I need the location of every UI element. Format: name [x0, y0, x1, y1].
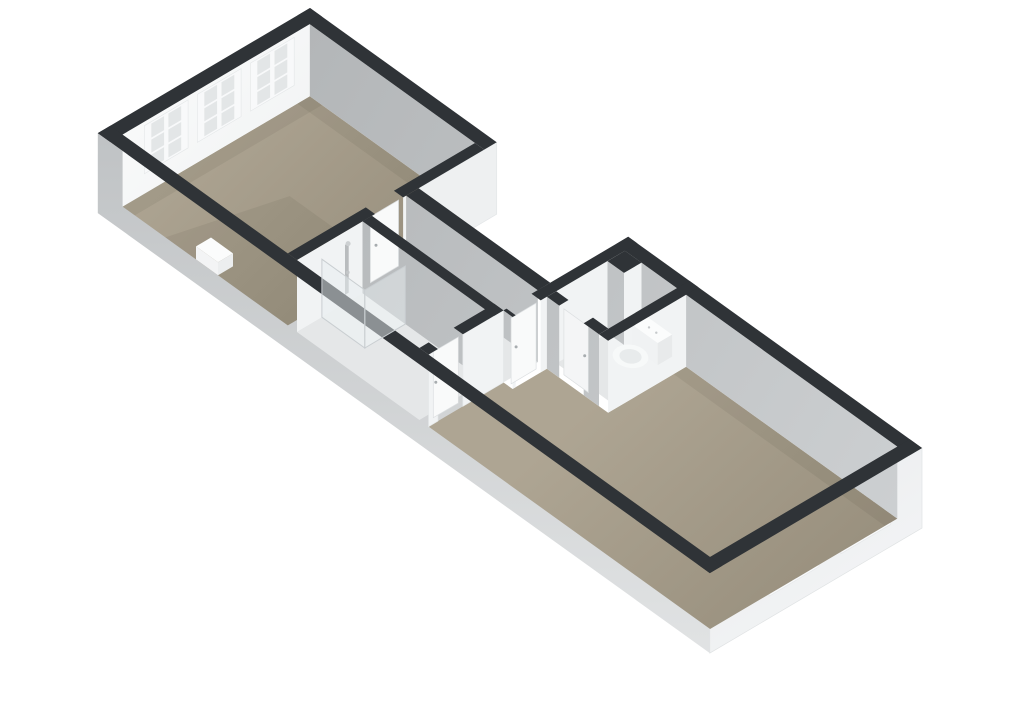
- flush-button: [648, 326, 650, 328]
- door-handle: [583, 354, 586, 357]
- flush-button: [655, 332, 657, 334]
- door-handle: [375, 244, 378, 247]
- door-handle: [434, 381, 437, 384]
- shower-head: [346, 241, 351, 246]
- floorplan-3d: [0, 0, 1024, 724]
- shower-valve: [346, 271, 350, 275]
- floorplan-svg: [0, 0, 1024, 724]
- door-handle: [515, 345, 518, 348]
